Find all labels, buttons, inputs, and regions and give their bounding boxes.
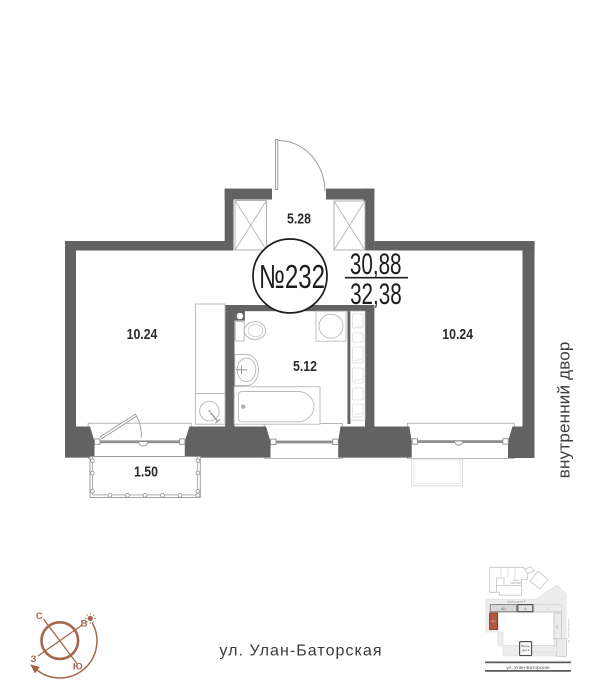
svg-text:4: 4	[524, 607, 526, 611]
svg-text:1.50: 1.50	[134, 463, 158, 479]
svg-text:4/3: 4/3	[555, 625, 559, 629]
svg-text:30,88: 30,88	[350, 249, 402, 281]
svg-text:внутренний двор: внутренний двор	[554, 341, 573, 478]
svg-text:ул. Улан-Баторская: ул. Улан-Баторская	[219, 643, 382, 660]
svg-text:Выход дом 4: Выход дом 4	[508, 599, 526, 603]
svg-text:ул. Улан-Баторская: ул. Улан-Баторская	[506, 665, 550, 671]
svg-text:Ю: Ю	[73, 661, 83, 672]
svg-text:10.24: 10.24	[442, 326, 473, 342]
svg-text:4: 4	[547, 607, 549, 611]
svg-text:5.28: 5.28	[287, 211, 311, 227]
svg-text:№232: №232	[259, 259, 325, 296]
svg-text:4/1: 4/1	[501, 607, 506, 611]
svg-text:5.12: 5.12	[293, 358, 317, 374]
svg-text:дом 3: дом 3	[522, 648, 530, 652]
svg-text:32,38: 32,38	[350, 278, 402, 310]
svg-text:З: З	[31, 654, 37, 665]
svg-text:В: В	[81, 618, 88, 629]
svg-text:С: С	[36, 611, 43, 622]
svg-text:ПАСПОРТ: ПАСПОРТ	[510, 582, 522, 585]
svg-text:ул. Улан-Баторская: ул. Улан-Баторская	[566, 619, 570, 643]
svg-text:4/2: 4/2	[491, 620, 496, 624]
svg-text:10.24: 10.24	[127, 326, 158, 342]
